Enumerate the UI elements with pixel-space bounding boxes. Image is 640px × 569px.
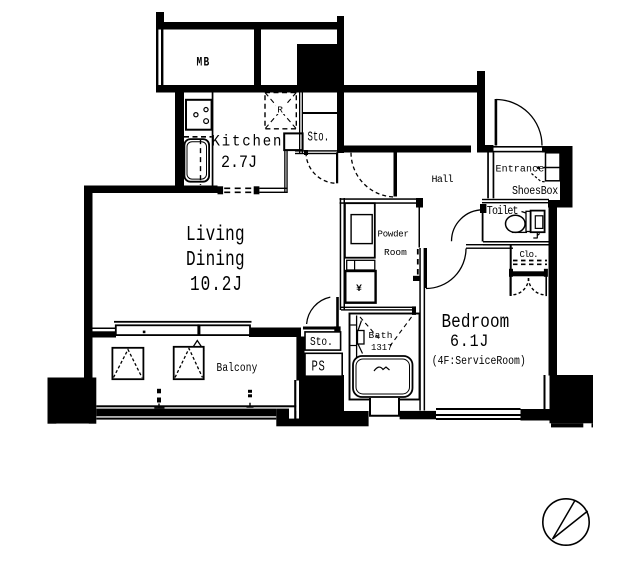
svg-text:Entrance: Entrance [496,164,545,175]
svg-text:Sto.: Sto. [310,336,333,349]
svg-text:6.1J: 6.1J [450,331,489,351]
svg-text:2.7J: 2.7J [221,153,257,172]
svg-text:(4F:ServiceRoom): (4F:ServiceRoom) [432,355,526,368]
svg-text:1317: 1317 [371,343,393,353]
svg-text:¥: ¥ [356,284,362,295]
svg-text:ShoesBox: ShoesBox [512,185,559,198]
svg-text:MB: MB [197,55,211,70]
svg-text:Kitchen: Kitchen [212,134,284,151]
svg-text:Living: Living [186,223,245,247]
svg-text:PS: PS [312,358,326,375]
svg-text:10.2J: 10.2J [190,273,243,297]
svg-text:Room: Room [384,247,407,258]
svg-text:R: R [277,105,283,116]
svg-text:Dining: Dining [186,248,245,272]
svg-text:Clo.: Clo. [520,250,538,260]
svg-text:Sto.: Sto. [308,130,330,145]
svg-text:Hall: Hall [432,174,454,186]
svg-text:Powder: Powder [378,230,409,240]
svg-text:Balcony: Balcony [217,362,258,375]
